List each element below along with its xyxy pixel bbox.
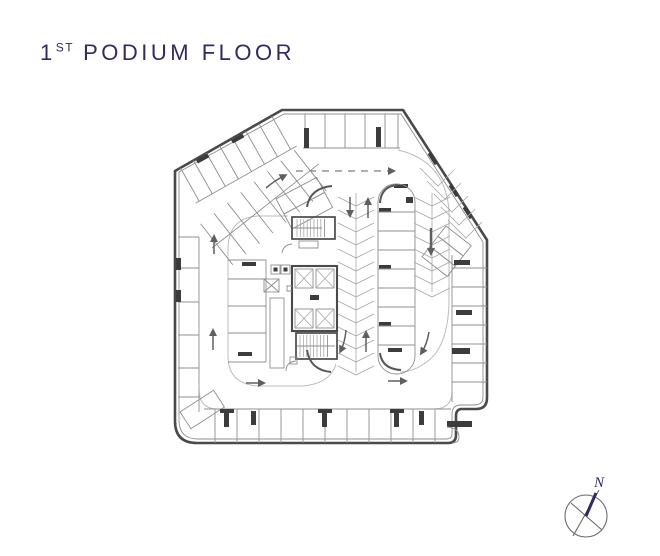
ramp-chevrons-upper-right xyxy=(420,168,482,238)
staircase-top xyxy=(282,217,335,253)
ramp-chevrons-left xyxy=(338,193,374,375)
floor-plan-drawing: N xyxy=(0,0,660,556)
door-swing xyxy=(286,361,296,371)
exterior-column xyxy=(447,421,472,427)
staircase-bottom xyxy=(286,333,337,371)
parking-row-left xyxy=(178,237,199,412)
building-outline xyxy=(175,110,487,443)
angled-parking-upper-left-inner xyxy=(201,150,327,265)
floor-plan-page: 1STPODIUM FLOOR xyxy=(0,0,660,556)
north-label: N xyxy=(593,475,605,491)
parking-row-top xyxy=(303,114,400,148)
compass-rose: N xyxy=(565,475,607,537)
door-swing xyxy=(282,244,292,253)
structural-columns xyxy=(176,127,473,427)
parking-row-right xyxy=(452,255,487,402)
parking-row-bottom xyxy=(204,409,451,443)
angled-stalls-right-diagonal xyxy=(422,226,471,276)
inner-rooms xyxy=(264,265,290,368)
north-needle-icon xyxy=(586,493,596,516)
elevator-core xyxy=(287,266,337,331)
parking-inner-left xyxy=(228,260,266,362)
